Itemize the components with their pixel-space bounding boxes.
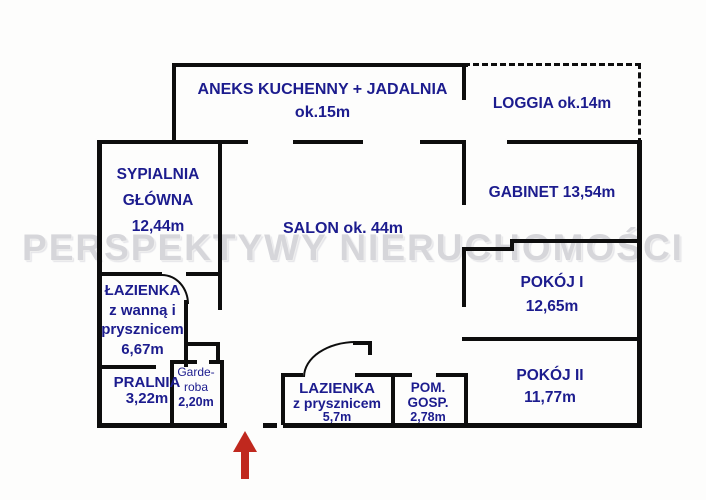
wall-bottom-a (97, 423, 227, 428)
room-area: ok.15m (180, 101, 465, 124)
room-name: POM. (394, 381, 462, 396)
door-arc-lazienka-prysznic (303, 341, 356, 377)
wall-gabinet-pokoj1-a (462, 247, 514, 251)
room-name: GŁÓWNA (99, 188, 217, 214)
room-desc: z prysznicem (285, 396, 389, 410)
room-label-lazienka-prysznic: LAZIENKA z prysznicem 5,7m (285, 382, 389, 424)
room-name: GOSP. (394, 396, 462, 411)
room-name: SALON ok. 44m (248, 219, 438, 239)
room-name: ANEKS KUCHENNY + JADALNIA (180, 78, 465, 101)
wall-corridor-step-v (216, 342, 220, 362)
room-name: LAZIENKA (285, 382, 389, 396)
wall-sypialnia-bottom-b (186, 272, 222, 276)
room-name: ŁAZIENKA (97, 281, 188, 301)
wall-lazienka2-top-b (355, 373, 412, 377)
room-area: 12,65m (466, 295, 638, 319)
room-label-pokoj-1: POKÓJ I 12,65m (466, 271, 638, 319)
room-label-aneks: ANEKS KUCHENNY + JADALNIA ok.15m (180, 78, 465, 124)
room-name: SYPIALNIA (99, 162, 217, 188)
room-label-sypialnia: SYPIALNIA GŁÓWNA 12,44m (99, 162, 217, 240)
room-area: 6,67m (97, 340, 188, 360)
wall-aneks-left (172, 63, 176, 144)
wall-gabinet-pokoj1-b (510, 239, 641, 243)
room-name: GABINET 13,54m (466, 183, 638, 203)
wall-door-hook-v (368, 341, 372, 355)
room-area: 5,7m (285, 410, 389, 424)
room-desc: prysznicem (97, 320, 188, 340)
room-name: roba (172, 380, 220, 395)
room-label-salon: SALON ok. 44m (248, 219, 438, 239)
room-name: POKÓJ II (466, 365, 634, 387)
room-area: 2,20m (172, 395, 220, 410)
wall-loggia-right-dashed (638, 63, 641, 144)
wall-garderoba-right (220, 360, 224, 426)
room-name: Garde- (172, 365, 220, 380)
entrance-arrow-shaft (241, 449, 249, 479)
room-label-pom-gosp: POM. GOSP. 2,78m (394, 381, 462, 425)
room-area: 12,44m (99, 214, 217, 240)
room-name: POKÓJ I (466, 271, 638, 295)
room-label-loggia: LOGGIA ok.14m (466, 94, 638, 114)
wall-sypialnia-salon (218, 140, 222, 310)
room-label-gabinet: GABINET 13,54m (466, 183, 638, 203)
room-name: LOGGIA ok.14m (466, 94, 638, 114)
room-label-pokoj-2: POKÓJ II 11,77m (466, 365, 634, 409)
wall-top-mid-b (420, 140, 466, 144)
wall-sypialnia-bottom-a (97, 272, 162, 276)
wall-pokoj1-pokoj2 (462, 337, 641, 341)
wall-top-mid-a (293, 140, 363, 144)
room-area: 11,77m (466, 387, 634, 409)
wall-gabinet-step-v (510, 239, 514, 251)
room-desc: z wanną i (97, 301, 188, 321)
room-label-garderoba: Garde- roba 2,20m (172, 365, 220, 410)
wall-lazienka-pralnia (97, 365, 156, 369)
wall-loggia-top-dashed (464, 63, 641, 66)
room-area: 2,78m (394, 410, 462, 425)
wall-bottom-b (263, 423, 277, 428)
room-label-lazienka-wanna: ŁAZIENKA z wanną i prysznicem 6,67m (97, 281, 188, 359)
wall-aneks-top (172, 63, 468, 67)
floor-plan: PERSPEKTYWY NIERUCHOMOŚCI ANEKS KUCHENNY… (0, 0, 706, 500)
wall-loggia-bottom (507, 140, 641, 144)
